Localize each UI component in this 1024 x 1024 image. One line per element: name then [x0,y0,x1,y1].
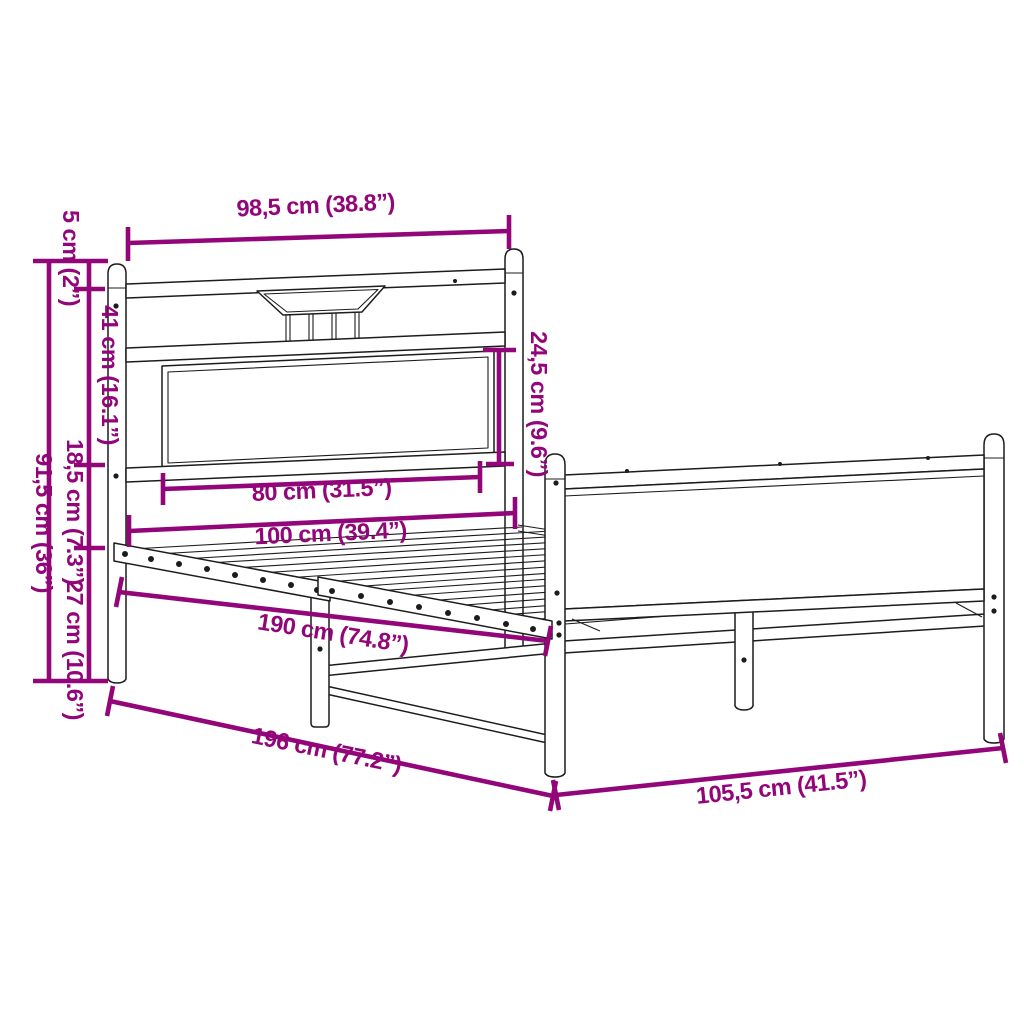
bed-frame-dimension-diagram: 5 cm (2”) 41 cm (16.1”) 91,5 cm (36”) 18… [0,0,1024,1024]
dim-overall-width: 105,5 cm (41.5”) [553,733,1006,810]
lower-side-rail [326,686,552,744]
dim-headboard-upper-height-label: 41 cm (16.1”) [97,305,123,445]
dim-headboard-width-label: 98,5 cm (38.8”) [236,189,395,222]
footboard-panel [564,469,984,609]
underframe [322,614,985,744]
dim-overall-length: 196 cm (77.2”) [107,686,556,811]
foot-cross-bar [564,614,985,653]
dim-headboard-panel-width-label: 80 cm (31.5”) [251,474,392,506]
dim-overall-length-label: 196 cm (77.2”) [249,722,403,778]
dim-overall-height-label: 91,5 cm (36”) [31,453,57,593]
dim-post-cap-offset-label: 5 cm (2”) [58,210,84,306]
dim-floor-clearance-label: 27 cm (10.6”) [62,580,88,720]
headboard-ornament [257,286,385,343]
dim-bed-width-label: 100 cm (39.4”) [254,517,407,550]
footboard [545,434,1004,777]
footboard-far-post [984,434,1004,743]
headboard-right-post [505,249,523,650]
headboard-panel [162,351,494,469]
dimension-diagram-page: 5 cm (2”) 41 cm (16.1”) 91,5 cm (36”) 18… [0,0,1024,1024]
dim-headboard-panel-height-label: 24,5 cm (9.6”) [526,331,552,477]
dim-headboard-lower-gap-label: 18,5 cm (7.3”) [62,439,88,585]
dim-bed-width: 100 cm (39.4”) [129,497,515,549]
bed-frame-drawing [108,249,1004,777]
footboard-front-post [545,454,565,777]
dim-headboard-width: 98,5 cm (38.8”) [128,189,509,261]
